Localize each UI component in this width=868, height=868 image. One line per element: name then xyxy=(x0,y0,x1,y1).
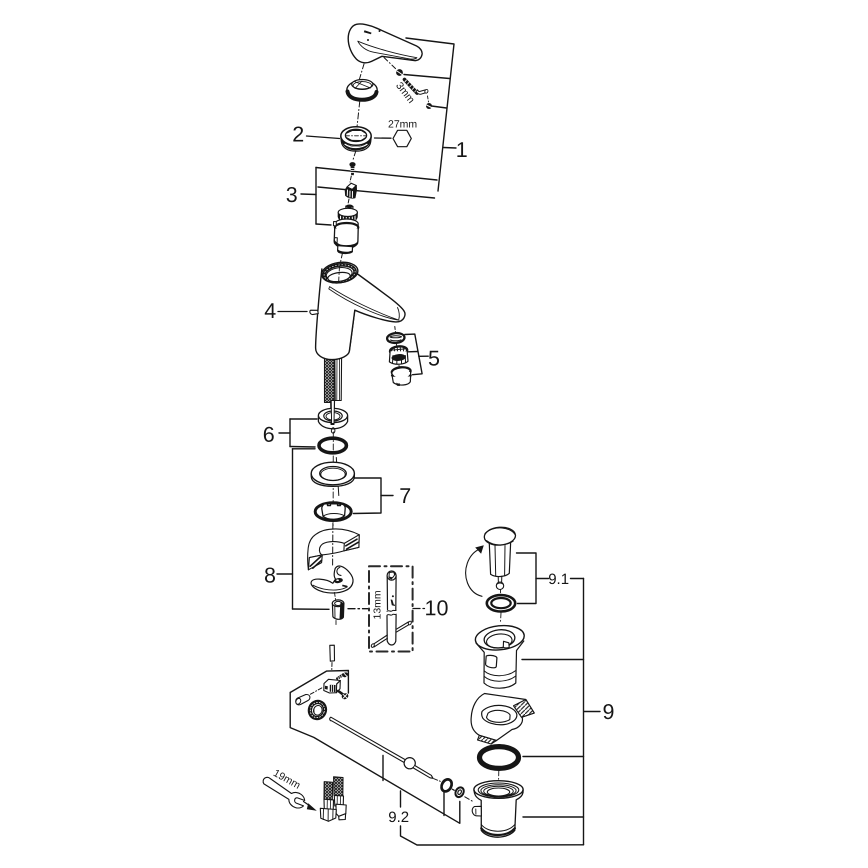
svg-text:9.1: 9.1 xyxy=(548,571,569,588)
svg-text:13mm: 13mm xyxy=(372,590,384,619)
svg-text:8: 8 xyxy=(264,564,276,588)
svg-text:2: 2 xyxy=(292,123,304,147)
svg-text:10: 10 xyxy=(424,596,448,620)
svg-text:6: 6 xyxy=(263,423,275,447)
svg-text:3: 3 xyxy=(286,183,298,207)
svg-text:27mm: 27mm xyxy=(388,119,417,131)
svg-text:7: 7 xyxy=(399,484,411,508)
svg-text:4: 4 xyxy=(264,299,276,323)
svg-text:5: 5 xyxy=(428,347,440,371)
svg-text:9.2: 9.2 xyxy=(388,809,409,826)
svg-text:1: 1 xyxy=(456,138,468,162)
svg-text:9: 9 xyxy=(602,700,614,724)
